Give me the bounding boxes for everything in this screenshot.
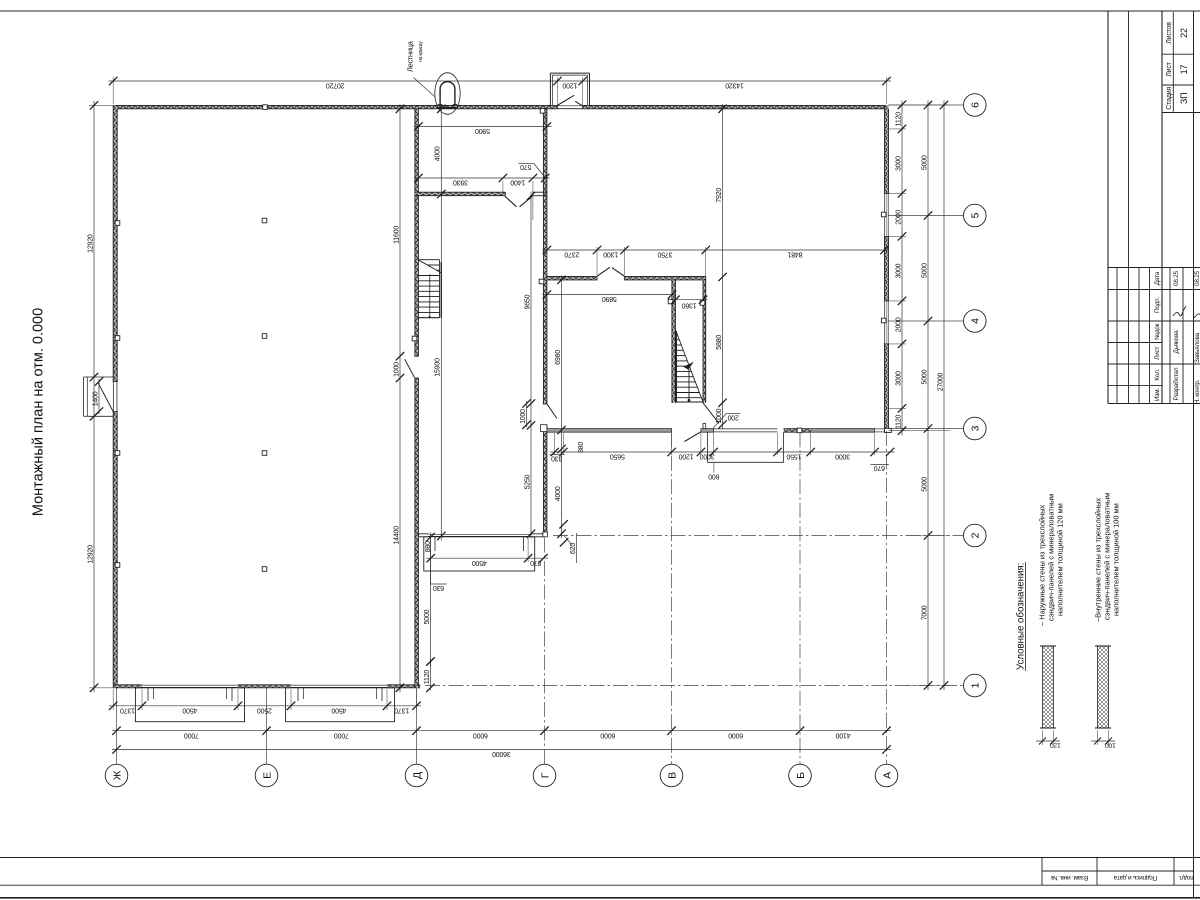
svg-text:3000: 3000 xyxy=(700,453,715,460)
svg-text:120: 120 xyxy=(1050,742,1061,749)
svg-text:5890: 5890 xyxy=(602,295,617,302)
svg-text:Дьякова: Дьякова xyxy=(1173,330,1180,354)
svg-text:20720: 20720 xyxy=(326,82,345,89)
svg-text:наполнителем толщиной 120 мм: наполнителем толщиной 120 мм xyxy=(1056,503,1065,616)
svg-text:570: 570 xyxy=(520,163,531,170)
svg-text:15900: 15900 xyxy=(435,358,442,377)
svg-text:2370: 2370 xyxy=(564,251,579,258)
svg-text:подл.: подл. xyxy=(1178,874,1194,881)
svg-text:2500: 2500 xyxy=(257,706,272,713)
svg-text:200: 200 xyxy=(727,413,738,420)
svg-text:сэндвич-панелей с минераловатн: сэндвич-панелей с минераловатным xyxy=(1103,493,1112,620)
svg-text:5000: 5000 xyxy=(921,369,928,384)
svg-text:В: В xyxy=(666,772,678,779)
svg-text:Завьялова: Завьялова xyxy=(1194,332,1200,363)
svg-text:100: 100 xyxy=(1105,742,1116,749)
svg-text:Е: Е xyxy=(261,772,273,779)
svg-text:14320: 14320 xyxy=(725,82,744,89)
svg-text:5000: 5000 xyxy=(921,155,928,170)
svg-text:4000: 4000 xyxy=(435,146,442,161)
svg-text:7000: 7000 xyxy=(334,731,349,738)
svg-text:3930: 3930 xyxy=(453,179,468,186)
svg-text:1120: 1120 xyxy=(424,670,431,685)
svg-text:Подп.: Подп. xyxy=(1154,297,1161,313)
svg-text:–Внутренние стены из трехслойн: –Внутренние стены из трехслойных xyxy=(1094,497,1103,622)
svg-text:на крышу: на крышу xyxy=(418,41,424,62)
svg-text:9650: 9650 xyxy=(524,294,531,309)
svg-text:4500: 4500 xyxy=(331,706,346,713)
svg-text:– Наружные стены из трехслойны: – Наружные стены из трехслойных xyxy=(1038,504,1047,626)
svg-text:7000: 7000 xyxy=(184,731,199,738)
svg-text:3000: 3000 xyxy=(895,156,902,171)
svg-text:Монтажный план на отм. 0.000: Монтажный план на отм. 0.000 xyxy=(31,308,47,516)
svg-text:4: 4 xyxy=(970,318,982,324)
svg-text:12920: 12920 xyxy=(87,545,94,564)
svg-text:1120: 1120 xyxy=(895,414,902,429)
svg-text:1000: 1000 xyxy=(520,409,527,424)
svg-text:5: 5 xyxy=(970,212,982,218)
svg-text:2: 2 xyxy=(970,532,982,538)
svg-text:3000: 3000 xyxy=(835,453,850,460)
svg-text:17: 17 xyxy=(1179,65,1189,75)
svg-text:4500: 4500 xyxy=(472,559,487,566)
svg-text:5000: 5000 xyxy=(424,609,431,624)
svg-text:6000: 6000 xyxy=(600,731,615,738)
svg-text:08.25: 08.25 xyxy=(1194,270,1200,286)
svg-text:1000: 1000 xyxy=(393,362,400,377)
svg-text:2000: 2000 xyxy=(895,210,902,225)
svg-text:ЗП: ЗП xyxy=(1179,93,1189,105)
svg-text:3: 3 xyxy=(970,425,982,431)
svg-text:Г: Г xyxy=(539,772,551,778)
svg-text:7920: 7920 xyxy=(716,188,723,203)
svg-text:1200: 1200 xyxy=(679,453,694,460)
svg-text:6980: 6980 xyxy=(555,350,562,365)
svg-text:Условные обозначения:: Условные обозначения: xyxy=(1015,563,1026,670)
svg-text:36000: 36000 xyxy=(492,750,511,757)
svg-text:4000: 4000 xyxy=(555,486,562,501)
svg-text:Стадия: Стадия xyxy=(1166,87,1173,110)
svg-text:5880: 5880 xyxy=(716,335,723,350)
svg-text:14400: 14400 xyxy=(393,526,400,545)
svg-text:6000: 6000 xyxy=(728,731,743,738)
svg-text:1550: 1550 xyxy=(786,453,801,460)
svg-text:наполнителем толщиной 100 мм: наполнителем толщиной 100 мм xyxy=(1112,503,1121,616)
svg-text:сэндвич-панелей с минераловатн: сэндвич-панелей с минераловатным xyxy=(1047,494,1056,621)
svg-text:Изм.: Изм. xyxy=(1154,388,1161,401)
svg-text:3000: 3000 xyxy=(895,263,902,278)
svg-text:08.25: 08.25 xyxy=(1173,270,1180,286)
svg-text:Разработал: Разработал xyxy=(1172,367,1180,400)
svg-text:Лист: Лист xyxy=(1166,61,1173,76)
svg-text:Д: Д xyxy=(411,772,423,779)
svg-text:1370: 1370 xyxy=(120,706,135,713)
svg-text:Б: Б xyxy=(795,772,807,779)
svg-text:Листов: Листов xyxy=(1166,22,1173,44)
svg-text:22: 22 xyxy=(1179,28,1189,38)
svg-text:380: 380 xyxy=(578,442,585,453)
svg-text:3750: 3750 xyxy=(657,251,672,258)
svg-text:Лист: Лист xyxy=(1154,346,1161,359)
svg-text:620: 620 xyxy=(570,543,577,554)
svg-text:11600: 11600 xyxy=(393,226,400,244)
svg-text:630: 630 xyxy=(433,584,444,591)
svg-text:Ж: Ж xyxy=(111,770,123,780)
svg-text:Подпись и дата: Подпись и дата xyxy=(1113,874,1157,881)
svg-text:Взам. инв. №: Взам. инв. № xyxy=(1051,874,1089,881)
svg-text:670: 670 xyxy=(874,464,885,471)
svg-text:27000: 27000 xyxy=(937,372,944,391)
svg-text:1400: 1400 xyxy=(510,179,525,186)
svg-text:Дата: Дата xyxy=(1154,271,1161,285)
svg-text:4100: 4100 xyxy=(836,731,851,738)
svg-text:1400: 1400 xyxy=(92,391,99,406)
svg-text:1370: 1370 xyxy=(394,706,409,713)
svg-text:5650: 5650 xyxy=(610,453,625,460)
svg-text:Кол.: Кол. xyxy=(1154,368,1161,380)
svg-text:1360: 1360 xyxy=(682,301,697,308)
svg-text:870: 870 xyxy=(530,559,541,566)
svg-text:5000: 5000 xyxy=(921,477,928,492)
svg-text:4500: 4500 xyxy=(182,706,197,713)
svg-text:600: 600 xyxy=(708,472,719,479)
svg-text:Лестница: Лестница xyxy=(405,40,414,72)
svg-text:1300: 1300 xyxy=(603,251,618,258)
svg-text:Н. контр.: Н. контр. xyxy=(1194,379,1200,404)
svg-text:2000: 2000 xyxy=(895,317,902,332)
svg-text:12920: 12920 xyxy=(87,234,94,253)
svg-text:А: А xyxy=(881,772,893,779)
svg-text:№док: №док xyxy=(1154,323,1161,340)
svg-text:5900: 5900 xyxy=(475,127,490,134)
svg-text:1200: 1200 xyxy=(562,82,577,89)
svg-text:330: 330 xyxy=(551,454,562,461)
svg-text:1: 1 xyxy=(970,682,982,688)
svg-text:7000: 7000 xyxy=(921,605,928,620)
svg-text:880: 880 xyxy=(425,541,432,552)
svg-text:6000: 6000 xyxy=(473,731,488,738)
svg-text:1120: 1120 xyxy=(895,112,902,127)
svg-text:8481: 8481 xyxy=(787,251,802,258)
svg-text:6: 6 xyxy=(970,102,982,108)
svg-text:5250: 5250 xyxy=(524,474,531,489)
svg-text:3000: 3000 xyxy=(895,371,902,386)
svg-text:5000: 5000 xyxy=(921,263,928,278)
